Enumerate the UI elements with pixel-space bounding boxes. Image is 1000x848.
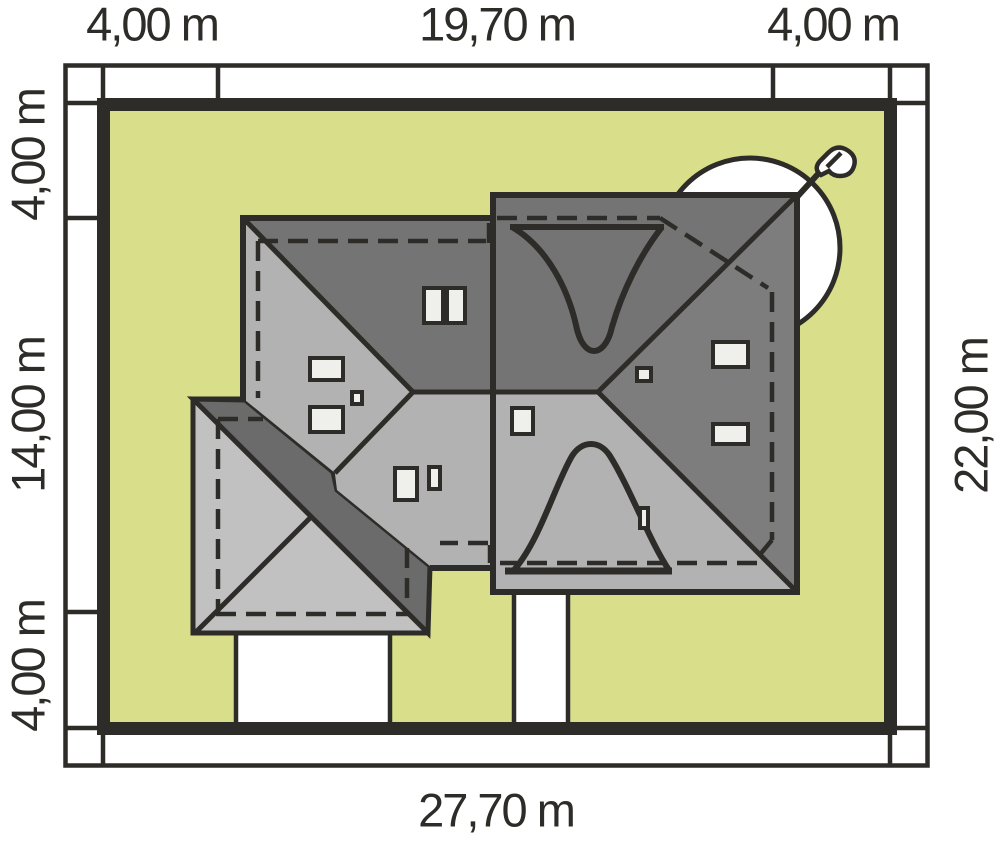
driveway	[236, 633, 390, 722]
site-plan-drawing	[0, 0, 1000, 848]
dim-left-house-depth: 14,00 m	[1, 337, 56, 493]
dim-bottom-plot-width: 27,70 m	[418, 783, 574, 838]
dim-left-south-setback: 4,00 m	[1, 600, 56, 732]
dim-top-west-setback: 4,00 m	[86, 0, 218, 52]
dim-top-east-setback: 4,00 m	[767, 0, 899, 52]
dim-right-plot-depth: 22,00 m	[944, 338, 999, 494]
dim-top-house-width: 19,70 m	[419, 0, 575, 52]
footpath	[514, 592, 568, 722]
dim-left-north-setback: 4,00 m	[1, 89, 56, 221]
site-plan: 4,00 m 19,70 m 4,00 m 4,00 m 14,00 m 4,0…	[0, 0, 1000, 848]
house-roof-east	[493, 195, 797, 592]
